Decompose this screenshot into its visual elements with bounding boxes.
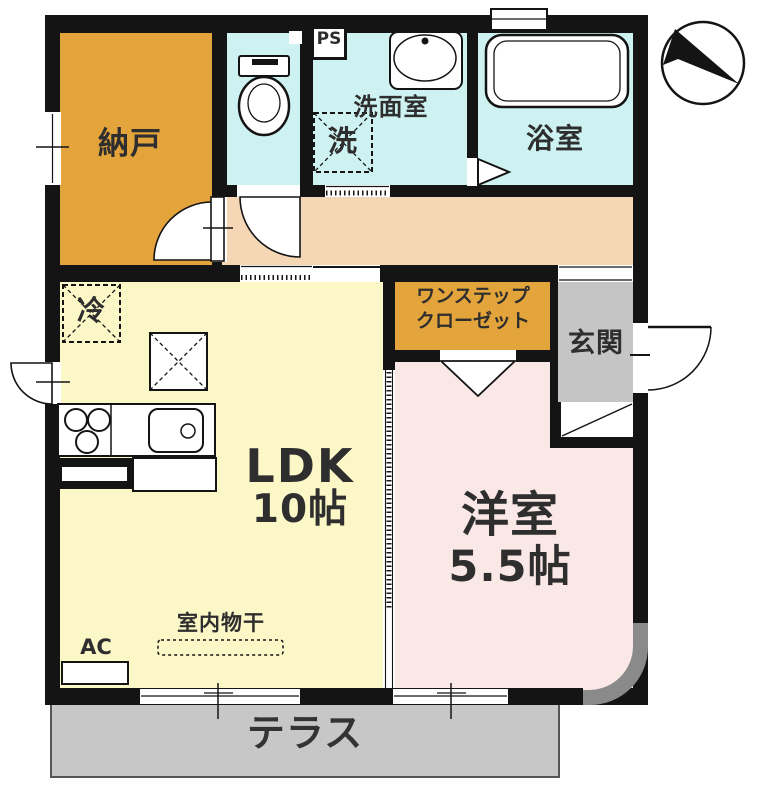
counter-square (150, 333, 207, 390)
closet-fold-door-icon (441, 361, 515, 396)
ac-box (62, 662, 128, 684)
floor-plan: テラス (0, 0, 762, 800)
laundry-label: 洗 (314, 126, 372, 156)
bath-fold-door-icon (478, 159, 509, 185)
ps-label: PS (311, 31, 347, 49)
slider-hatches (241, 187, 632, 689)
nando-door-icon (154, 197, 233, 261)
kitchen-cabinet (57, 458, 216, 491)
toilet-door-icon (240, 197, 300, 257)
step-diagonal (562, 404, 632, 436)
kitchen-sink-icon (149, 409, 203, 452)
genkan-label: 玄関 (560, 330, 632, 358)
nando-label: 納戸 (75, 128, 185, 161)
ldk-size-label: 10帖 (235, 490, 365, 531)
ldk-left-door-icon (11, 363, 70, 404)
closet-label-2: クローゼット (398, 312, 548, 332)
bathtub-icon (486, 35, 628, 107)
indoor-drying-label: 室内物干 (160, 612, 282, 634)
sink-icon (390, 32, 462, 89)
indoor-drying-box (158, 640, 283, 655)
fridge-label: 冷 (63, 296, 120, 325)
ac-label: AC (74, 636, 118, 658)
bath-label: 浴室 (515, 124, 595, 153)
toilet-icon (239, 56, 289, 135)
western-room-label: 洋室 (445, 490, 575, 540)
western-room-size-label: 5.5帖 (440, 545, 580, 590)
compass-icon (662, 22, 744, 104)
closet-label-1: ワンステップ (398, 287, 548, 307)
washroom-label: 洗面室 (336, 95, 446, 120)
entrance-door-icon (630, 327, 711, 390)
ldk-label: LDK (235, 442, 365, 490)
